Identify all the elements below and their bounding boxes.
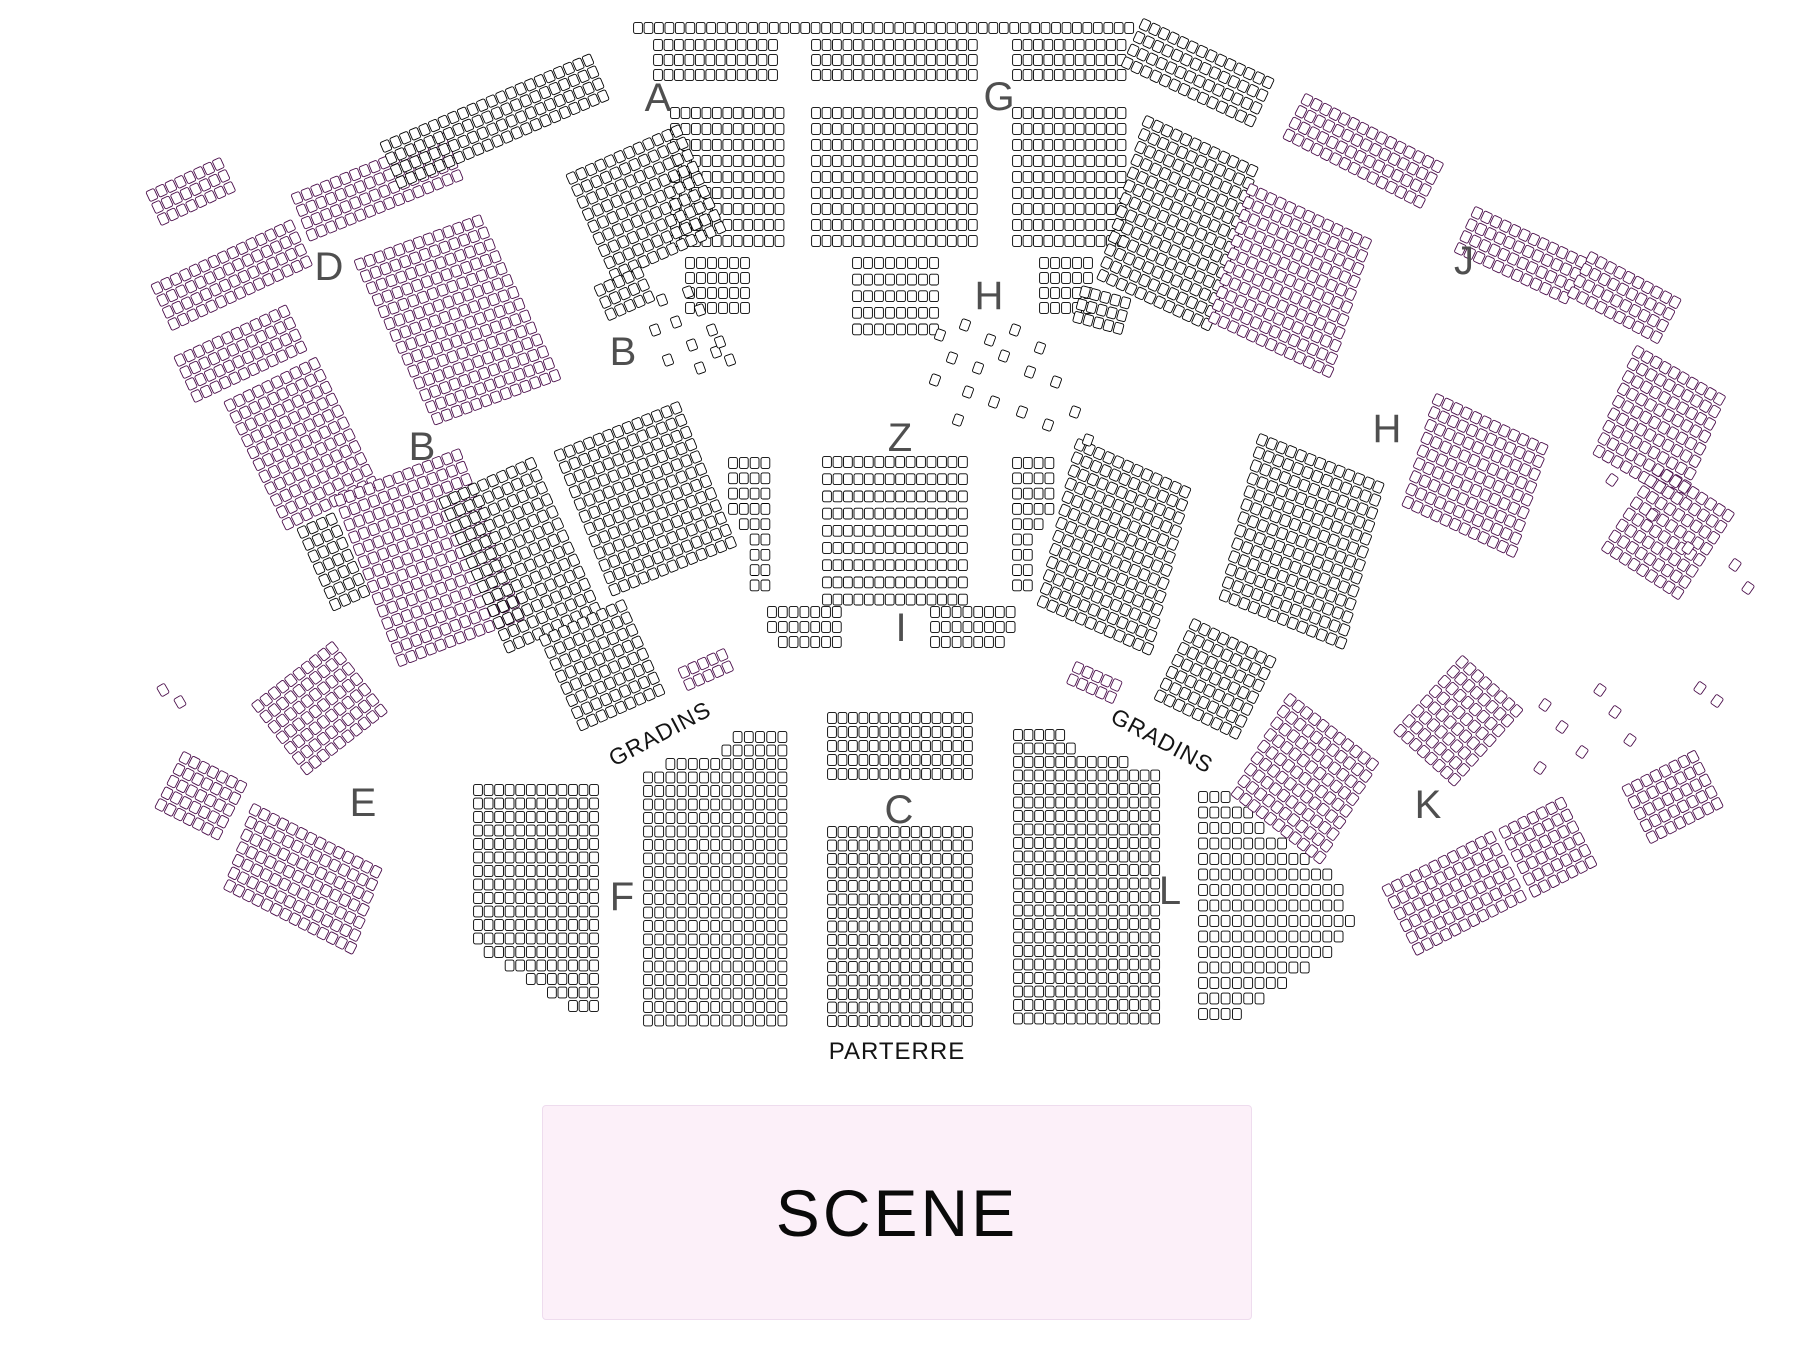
seat [948, 108, 957, 119]
seat [677, 975, 686, 986]
seat [569, 812, 578, 823]
seat [1013, 580, 1022, 591]
seat [767, 840, 776, 851]
seat [958, 140, 967, 151]
seat [441, 338, 453, 351]
seat [1098, 824, 1107, 835]
seat [1151, 851, 1160, 862]
seat [859, 727, 868, 738]
seat [948, 474, 957, 485]
seat [811, 607, 820, 618]
seat [495, 866, 504, 877]
seat [864, 23, 873, 34]
seat [733, 961, 742, 972]
seat [822, 236, 831, 247]
seat [1130, 919, 1139, 930]
seat [932, 727, 941, 738]
seat [1075, 156, 1084, 167]
seat [1151, 1000, 1160, 1011]
seat [1575, 745, 1588, 759]
seat [853, 204, 862, 215]
seat [1045, 892, 1054, 903]
seat [474, 382, 486, 395]
seat [1130, 784, 1139, 795]
seat [1334, 916, 1343, 927]
seat [666, 772, 675, 783]
seat [437, 284, 449, 297]
seat [859, 867, 868, 878]
seat [1266, 869, 1275, 880]
seat [1538, 698, 1551, 712]
seat [1077, 973, 1086, 984]
seat [1013, 519, 1022, 530]
seat [1266, 900, 1275, 911]
seat [537, 893, 546, 904]
seat [1077, 851, 1086, 862]
seat [686, 23, 695, 34]
seat [677, 894, 686, 905]
seat [688, 988, 697, 999]
seat [1054, 188, 1063, 199]
seat [1312, 916, 1321, 927]
seat [927, 40, 936, 51]
seat [526, 785, 535, 796]
seat [998, 349, 1010, 362]
seat [854, 594, 863, 605]
seat [864, 491, 873, 502]
seat [711, 880, 720, 891]
seat [1109, 824, 1118, 835]
seat [1289, 900, 1298, 911]
seat [754, 140, 763, 151]
seat [685, 70, 694, 81]
seat [655, 853, 664, 864]
seat [1014, 905, 1023, 916]
seat [897, 307, 906, 318]
seat [750, 580, 759, 591]
seat [692, 140, 701, 151]
seat [666, 988, 675, 999]
seat [1130, 959, 1139, 970]
seat [1024, 986, 1033, 997]
seat [937, 140, 946, 151]
seat [478, 367, 490, 380]
seat [1098, 757, 1107, 768]
seating-map: AGDBBHJHZIEKFCL GRADINS GRADINS PARTERRE… [0, 0, 1794, 1345]
seat [1014, 932, 1023, 943]
seat [739, 488, 748, 499]
seat [1066, 757, 1075, 768]
seat [1013, 473, 1022, 484]
seat [1045, 811, 1054, 822]
seat [901, 921, 910, 932]
seat [1119, 1013, 1128, 1024]
seat [943, 989, 952, 1000]
seat [1077, 946, 1086, 957]
seat [849, 894, 858, 905]
seat [911, 975, 920, 986]
seat [495, 852, 504, 863]
seat [880, 755, 889, 766]
seat [958, 172, 967, 183]
seat [906, 156, 915, 167]
seat [1278, 978, 1287, 989]
seat [922, 881, 931, 892]
seat [579, 879, 588, 890]
seat [1040, 273, 1049, 284]
seat [685, 55, 694, 66]
seat [1119, 865, 1128, 876]
seat [756, 826, 765, 837]
seat [880, 935, 889, 946]
seat [738, 23, 747, 34]
seat [1098, 770, 1107, 781]
seat [885, 156, 894, 167]
seat [1130, 797, 1139, 808]
seat [968, 172, 977, 183]
seat [1066, 959, 1075, 970]
seat [495, 798, 504, 809]
seat [953, 741, 962, 752]
seat [833, 70, 842, 81]
seat [1065, 140, 1074, 151]
seat [874, 236, 883, 247]
seat [1103, 319, 1114, 332]
seat [919, 258, 928, 269]
seat [778, 975, 787, 986]
seat [1098, 892, 1107, 903]
seat [399, 255, 411, 268]
seat [941, 607, 950, 618]
seat [767, 732, 776, 743]
seat [958, 188, 967, 199]
seat [968, 156, 977, 167]
seat [1077, 797, 1086, 808]
seat [533, 361, 545, 374]
seat [711, 948, 720, 959]
seat [744, 894, 753, 905]
seat [849, 935, 858, 946]
seat [1130, 838, 1139, 849]
seat [723, 204, 732, 215]
seat [1151, 838, 1160, 849]
seat [717, 23, 726, 34]
seat [1107, 40, 1116, 51]
seat [744, 140, 753, 151]
seat [1056, 905, 1065, 916]
seat [901, 854, 910, 865]
seat [999, 23, 1008, 34]
seat [1199, 807, 1208, 818]
seat [733, 236, 742, 247]
seat [1023, 534, 1032, 545]
seat [723, 172, 732, 183]
seat [927, 204, 936, 215]
seat [767, 988, 776, 999]
seat [1077, 757, 1086, 768]
seat [1054, 204, 1063, 215]
seat [948, 560, 957, 571]
seat [523, 364, 535, 377]
seat [569, 825, 578, 836]
seat [922, 741, 931, 752]
seat [505, 933, 514, 944]
seat [1087, 757, 1096, 768]
seat [711, 975, 720, 986]
seat [449, 619, 461, 632]
seat [1087, 824, 1096, 835]
seat [433, 229, 445, 242]
seat [778, 759, 787, 770]
seat [655, 894, 664, 905]
seat [486, 336, 498, 349]
seat [916, 156, 925, 167]
seat [869, 908, 878, 919]
seat [838, 989, 847, 1000]
seat [474, 852, 483, 863]
seat [943, 1002, 952, 1013]
seat [1098, 919, 1107, 930]
seat [919, 324, 928, 335]
section-label-A: A [645, 78, 672, 118]
seat [700, 975, 709, 986]
seat [828, 1002, 837, 1013]
seat [526, 893, 535, 904]
seat [853, 220, 862, 231]
seat [1221, 854, 1230, 865]
seat [800, 637, 809, 648]
seat [378, 305, 390, 318]
seat [1024, 757, 1033, 768]
seat [1300, 931, 1309, 942]
seat [505, 785, 514, 796]
seat [688, 840, 697, 851]
seat [711, 894, 720, 905]
seat [526, 839, 535, 850]
seat [880, 713, 889, 724]
seat [828, 769, 837, 780]
seat [911, 840, 920, 851]
seat [968, 70, 977, 81]
seat [778, 853, 787, 864]
seat [1087, 959, 1096, 970]
seat [1312, 947, 1321, 958]
seat [869, 741, 878, 752]
seat [767, 907, 776, 918]
seat [775, 156, 784, 167]
seat [416, 589, 428, 602]
seat [1014, 730, 1023, 741]
seat [733, 894, 742, 905]
seat [1087, 838, 1096, 849]
seat [1255, 900, 1264, 911]
seat [1096, 40, 1105, 51]
seat [885, 204, 894, 215]
seat [1013, 204, 1022, 215]
seat [822, 220, 831, 231]
seat [1140, 946, 1149, 957]
seat [665, 23, 674, 34]
seat [1289, 854, 1298, 865]
seat [874, 188, 883, 199]
seat [1035, 1013, 1044, 1024]
seat [761, 473, 770, 484]
seat [1130, 905, 1139, 916]
seat [778, 637, 787, 648]
seat [688, 975, 697, 986]
seat [778, 894, 787, 905]
seat [1066, 797, 1075, 808]
seat [548, 852, 557, 863]
seat [849, 867, 858, 878]
seat [1077, 878, 1086, 889]
seat [494, 305, 506, 318]
seat [474, 825, 483, 836]
seat [644, 853, 653, 864]
seat [526, 933, 535, 944]
seat [664, 40, 673, 51]
seat [968, 108, 977, 119]
seat [833, 124, 842, 135]
seat [948, 525, 957, 536]
seat [744, 853, 753, 864]
seat [932, 827, 941, 838]
seat [932, 1016, 941, 1027]
seat [1312, 931, 1321, 942]
seat [1035, 878, 1044, 889]
seat [688, 853, 697, 864]
seat [885, 474, 894, 485]
seat [558, 839, 567, 850]
seat [722, 894, 731, 905]
seat [1023, 188, 1032, 199]
seat [1151, 919, 1160, 930]
seat [1140, 811, 1149, 822]
seat [812, 156, 821, 167]
seat [1066, 770, 1075, 781]
seat [761, 488, 770, 499]
seat [516, 852, 525, 863]
seat [415, 618, 427, 631]
seat [1210, 931, 1219, 942]
seat [1014, 743, 1023, 754]
seat [484, 785, 493, 796]
seat [339, 506, 351, 519]
seat [765, 204, 774, 215]
seat [569, 852, 578, 863]
seat [706, 70, 715, 81]
seat [937, 172, 946, 183]
seat [733, 921, 742, 932]
seat [869, 727, 878, 738]
seat [916, 40, 925, 51]
seat [511, 341, 523, 354]
seat [1199, 885, 1208, 896]
seat [828, 894, 837, 905]
seat [711, 813, 720, 824]
seat [423, 373, 435, 386]
seat [423, 303, 435, 316]
seat [688, 813, 697, 824]
seat [789, 622, 798, 633]
seat [1054, 140, 1063, 151]
seat [901, 867, 910, 878]
seat [526, 825, 535, 836]
seat [1023, 565, 1032, 576]
seat [711, 840, 720, 851]
seat [932, 741, 941, 752]
seat [730, 258, 739, 269]
seat [963, 622, 972, 633]
seat [922, 921, 931, 932]
seat [744, 975, 753, 986]
seat [655, 988, 664, 999]
seat [1066, 1000, 1075, 1011]
seat [833, 491, 842, 502]
seat [901, 1016, 910, 1027]
seat [537, 839, 546, 850]
seat [382, 588, 394, 601]
seat [644, 934, 653, 945]
seat [869, 1016, 878, 1027]
seat [859, 881, 868, 892]
seat [500, 387, 512, 400]
seat [890, 989, 899, 1000]
seat [1119, 892, 1128, 903]
seat [964, 894, 973, 905]
seat [1278, 916, 1287, 927]
seat [1056, 932, 1065, 943]
seat [711, 1015, 720, 1026]
seat [1024, 946, 1033, 957]
seat [722, 840, 731, 851]
seat [1151, 811, 1160, 822]
seat [435, 256, 447, 269]
seat [711, 988, 720, 999]
seat [874, 124, 883, 135]
seat [1278, 900, 1287, 911]
seat [988, 395, 1000, 408]
seat [548, 866, 557, 877]
seat [1266, 854, 1275, 865]
seat [452, 292, 464, 305]
seat [737, 70, 746, 81]
seat [964, 741, 973, 752]
seat [880, 854, 889, 865]
seat [964, 921, 973, 932]
seat [514, 368, 526, 381]
seat [686, 338, 698, 351]
seat [1024, 730, 1033, 741]
seat [927, 491, 936, 502]
seat [832, 622, 841, 633]
seat [675, 55, 684, 66]
seat [749, 23, 758, 34]
seat [1034, 519, 1043, 530]
seat [943, 975, 952, 986]
seat [922, 727, 931, 738]
seat [1077, 770, 1086, 781]
seat [917, 577, 926, 588]
seat [985, 607, 994, 618]
seat [932, 755, 941, 766]
seat [767, 961, 776, 972]
seat [864, 220, 873, 231]
seat [711, 759, 720, 770]
seat [843, 220, 852, 231]
seat [1087, 878, 1096, 889]
seat [353, 543, 365, 556]
